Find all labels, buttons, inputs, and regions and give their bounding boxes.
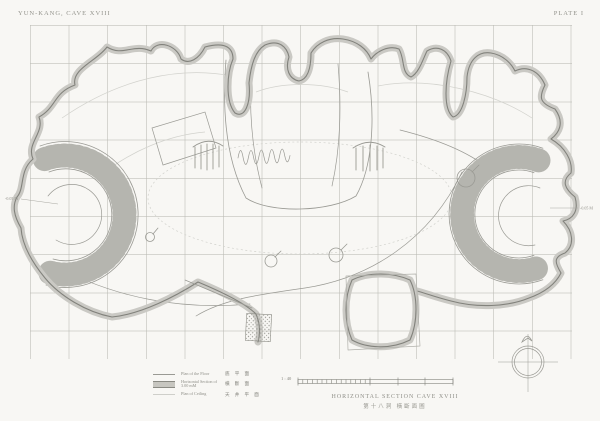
entrance-east-wall	[346, 274, 416, 347]
scale-bar	[298, 378, 453, 386]
caption: HORIZONTAL SECTION CAVE XVIII 第十八洞 橫斷面圖	[290, 394, 500, 410]
scale-ratio: 1 : 40	[281, 376, 291, 381]
left-hand-plan	[193, 141, 223, 170]
entrance-masonry-pier	[245, 313, 271, 341]
east-statue-ring	[449, 144, 543, 284]
compass-icon	[498, 334, 558, 392]
legend-label: Horizontal Section of 3.00 mM	[181, 380, 225, 390]
legend-label-cn: 底 平 面	[225, 371, 251, 377]
legend-label: Plan of the Floor	[181, 372, 225, 377]
caption-cn: 第十八洞 橫斷面圖	[290, 402, 500, 410]
floor-plan-lines	[40, 60, 548, 316]
section-band-swatch	[153, 381, 175, 388]
cave-outline	[14, 39, 576, 342]
central-buddha-plan	[152, 60, 372, 209]
ceiling-line-swatch	[153, 394, 175, 395]
west-statue-ring	[40, 142, 138, 288]
legend-label: Plan of Ceiling	[181, 392, 225, 397]
wall-section-band	[14, 39, 576, 350]
elevation-label-right: -0.05 M	[580, 206, 593, 211]
floor-line-swatch	[153, 374, 175, 375]
legend-item-floor: Plan of the Floor 底 平 面	[153, 371, 261, 377]
legend: Plan of the Floor 底 平 面 Horizontal Secti…	[153, 371, 261, 400]
scale-bar-label-wrap: 1 : 40	[281, 376, 295, 381]
cave-plan-drawing: -0.05 M -0.05 M	[0, 0, 600, 421]
plate-page: YUN-KANG, CAVE XVIII PLATE I	[0, 0, 600, 421]
legend-item-ceiling: Plan of Ceiling 天 井 平 面	[153, 392, 261, 398]
survey-markers	[146, 165, 480, 267]
elevation-label-left: -0.05 M	[5, 196, 18, 201]
legend-label-cn: 天 井 平 面	[225, 392, 261, 398]
elevation-annotations: -0.05 M -0.05 M	[5, 196, 593, 211]
legend-item-section: Horizontal Section of 3.00 mM 橫 斷 面	[153, 380, 261, 390]
pleat-squiggle-center	[238, 149, 290, 164]
caption-en: HORIZONTAL SECTION CAVE XVIII	[290, 394, 500, 400]
legend-label-cn: 橫 斷 面	[225, 381, 251, 387]
